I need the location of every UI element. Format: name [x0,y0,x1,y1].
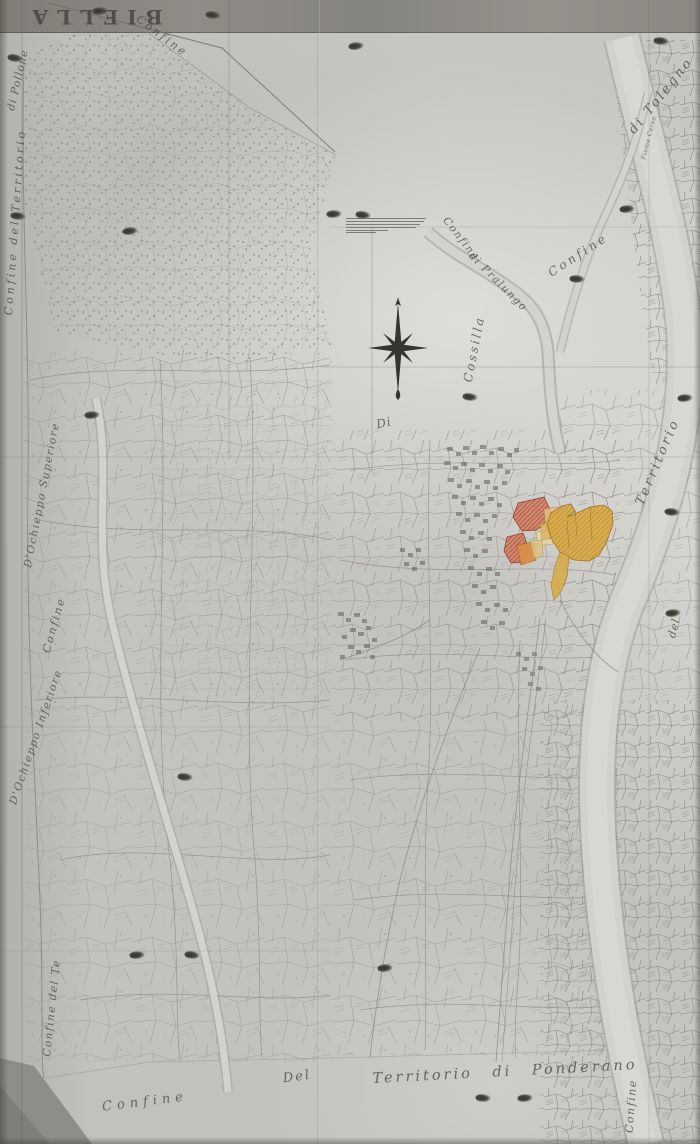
note-line [346,218,426,219]
compass-rose-icon [368,298,428,400]
fold-seam [320,366,700,368]
map-artwork [0,0,700,1144]
note-line [346,232,376,233]
fold-seam [317,0,320,1144]
sheet-left-edge [0,0,8,1144]
fold-seam [0,456,700,458]
note-line [346,224,420,225]
fold-seam [0,950,330,952]
note-line [346,230,388,231]
note-line [346,227,416,228]
fold-seam [371,228,373,473]
sheet-bottom-edge [0,1137,700,1144]
note-line [346,221,424,222]
sheet-corner-shadow [0,1058,92,1144]
fold-seam [0,726,330,728]
fold-seam [228,0,230,460]
handwritten-note [346,218,428,235]
fold-seam [648,0,650,1144]
historical-cadastral-map: BIELLA Confine di Pollone Confine del Te… [0,0,700,1144]
sheet-right-edge [694,0,700,1144]
